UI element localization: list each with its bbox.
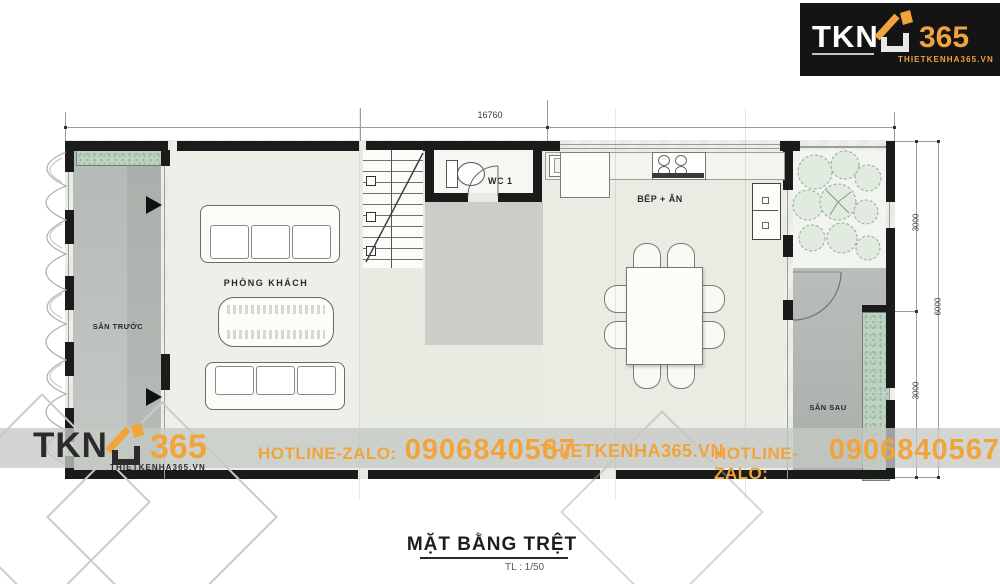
brand-site-text: THIETKENHA365.VN bbox=[110, 463, 206, 472]
sofa-cushion bbox=[251, 225, 290, 259]
dim-marker bbox=[893, 126, 896, 129]
dim-marker bbox=[937, 140, 940, 143]
sofa-top bbox=[200, 205, 340, 263]
dim-marker bbox=[64, 126, 67, 129]
entry-arrow-top bbox=[146, 196, 162, 214]
dim-conn-2 bbox=[895, 311, 917, 312]
left-pier-1 bbox=[65, 150, 74, 172]
title-underline bbox=[420, 557, 568, 559]
dim-right-lower: 3000 bbox=[912, 371, 921, 411]
right-pier-1 bbox=[886, 150, 895, 202]
left-pier-3 bbox=[65, 276, 74, 310]
brand-365-text: 365 bbox=[150, 428, 207, 467]
brand-365-text: 365 bbox=[919, 21, 969, 55]
kg-pier-3 bbox=[783, 300, 793, 320]
stair-stepbox-1 bbox=[366, 176, 376, 186]
sofa-cushion bbox=[256, 366, 295, 395]
fy-living-pier-top bbox=[161, 150, 170, 166]
hotline-label: HOTLINE-ZALO: bbox=[258, 444, 397, 464]
wc-wall-bottom-a bbox=[425, 193, 468, 202]
stove-burner-2 bbox=[675, 155, 687, 166]
house-icon bbox=[872, 7, 918, 53]
coffee-table-hatch bbox=[227, 305, 325, 314]
stove-front-band bbox=[652, 173, 704, 178]
hotline-left: HOTLINE-ZALO: 0906840567 bbox=[258, 434, 576, 467]
dim-marker bbox=[915, 140, 918, 143]
dining-table bbox=[626, 267, 703, 365]
sofa-cushion bbox=[215, 366, 254, 395]
label-kitchen: BẾP + ĂN bbox=[622, 194, 698, 204]
dim-right-upper: 3000 bbox=[912, 203, 921, 243]
drawing-title-text: MẶT BẰNG TRỆT bbox=[407, 534, 577, 555]
fy-living-pier-bot bbox=[161, 354, 170, 390]
sofa-cushion bbox=[210, 225, 249, 259]
left-pier-2 bbox=[65, 210, 74, 244]
garden-top-line bbox=[800, 146, 888, 148]
label-back-yard: SÂN SAU bbox=[798, 403, 858, 412]
brand-tkn-text: TKN bbox=[812, 19, 879, 55]
dim-marker bbox=[915, 310, 918, 313]
hotline-number: 0906840567 bbox=[829, 434, 1000, 467]
dim-marker bbox=[546, 126, 549, 129]
hotline-right: HOTLINE-ZALO: 0906840567 bbox=[714, 434, 1000, 484]
kitchen-cabinet bbox=[560, 152, 610, 198]
front-planter bbox=[76, 150, 166, 166]
sofa-bottom bbox=[205, 362, 345, 410]
toilet-bowl bbox=[457, 162, 485, 186]
label-living-room: PHÒNG KHÁCH bbox=[196, 278, 336, 288]
stair-stepbox-2 bbox=[366, 212, 376, 222]
floor-plan-image: SÂN TRƯỚC PHÒNG KHÁCH WC 1 BẾP + ĂN SÂN … bbox=[0, 0, 1000, 584]
house-icon bbox=[103, 420, 149, 466]
kg-pier-2 bbox=[783, 235, 793, 257]
sofa-cushion bbox=[292, 225, 331, 259]
dim-ext-2 bbox=[360, 108, 361, 141]
stove-burner-1 bbox=[658, 155, 670, 166]
wall-top-living bbox=[177, 141, 359, 151]
coffee-table-hatch bbox=[227, 330, 325, 339]
label-front-yard: SÂN TRƯỚC bbox=[78, 322, 158, 331]
fridge-dot-1 bbox=[762, 197, 769, 204]
brand-site-text: THIETKENHA365.VN bbox=[898, 55, 994, 64]
drawing-scale: TL : 1/50 bbox=[505, 562, 575, 573]
window-top-line2 bbox=[560, 148, 780, 149]
fridge-divider bbox=[753, 210, 778, 211]
dim-top-total: 16760 bbox=[455, 110, 525, 120]
window-top-line1 bbox=[560, 144, 780, 145]
watermark-site: THIETKENHA365.VN bbox=[540, 441, 724, 462]
stair-divider bbox=[391, 150, 392, 268]
dim-right-total: 6000 bbox=[934, 287, 943, 327]
brand-logo-bottom: TKN 365 THIETKENHA365.VN bbox=[0, 418, 260, 488]
dim-line-top bbox=[65, 127, 895, 128]
wall-top-frontyard bbox=[65, 141, 168, 151]
brand-logo-top: TKN 365 THIETKENHA365.VN bbox=[800, 3, 1000, 76]
sofa-cushion bbox=[297, 366, 336, 395]
wc-wall-right bbox=[533, 150, 542, 202]
wall-bottom-mid bbox=[368, 470, 600, 479]
fridge bbox=[752, 183, 781, 240]
coffee-table bbox=[218, 297, 334, 347]
hotline-label: HOTLINE-ZALO: bbox=[714, 444, 821, 484]
garden-area bbox=[793, 150, 886, 269]
stair-landing bbox=[425, 202, 543, 345]
logo-underline bbox=[812, 53, 874, 55]
label-wc: WC 1 bbox=[488, 176, 532, 186]
fridge-dot-2 bbox=[762, 222, 769, 229]
stair-stepbox-3 bbox=[366, 246, 376, 256]
brand-tkn-text: TKN bbox=[33, 426, 108, 466]
left-pier-4 bbox=[65, 342, 74, 376]
dim-ext-3 bbox=[547, 100, 548, 141]
right-pier-2 bbox=[886, 228, 895, 388]
